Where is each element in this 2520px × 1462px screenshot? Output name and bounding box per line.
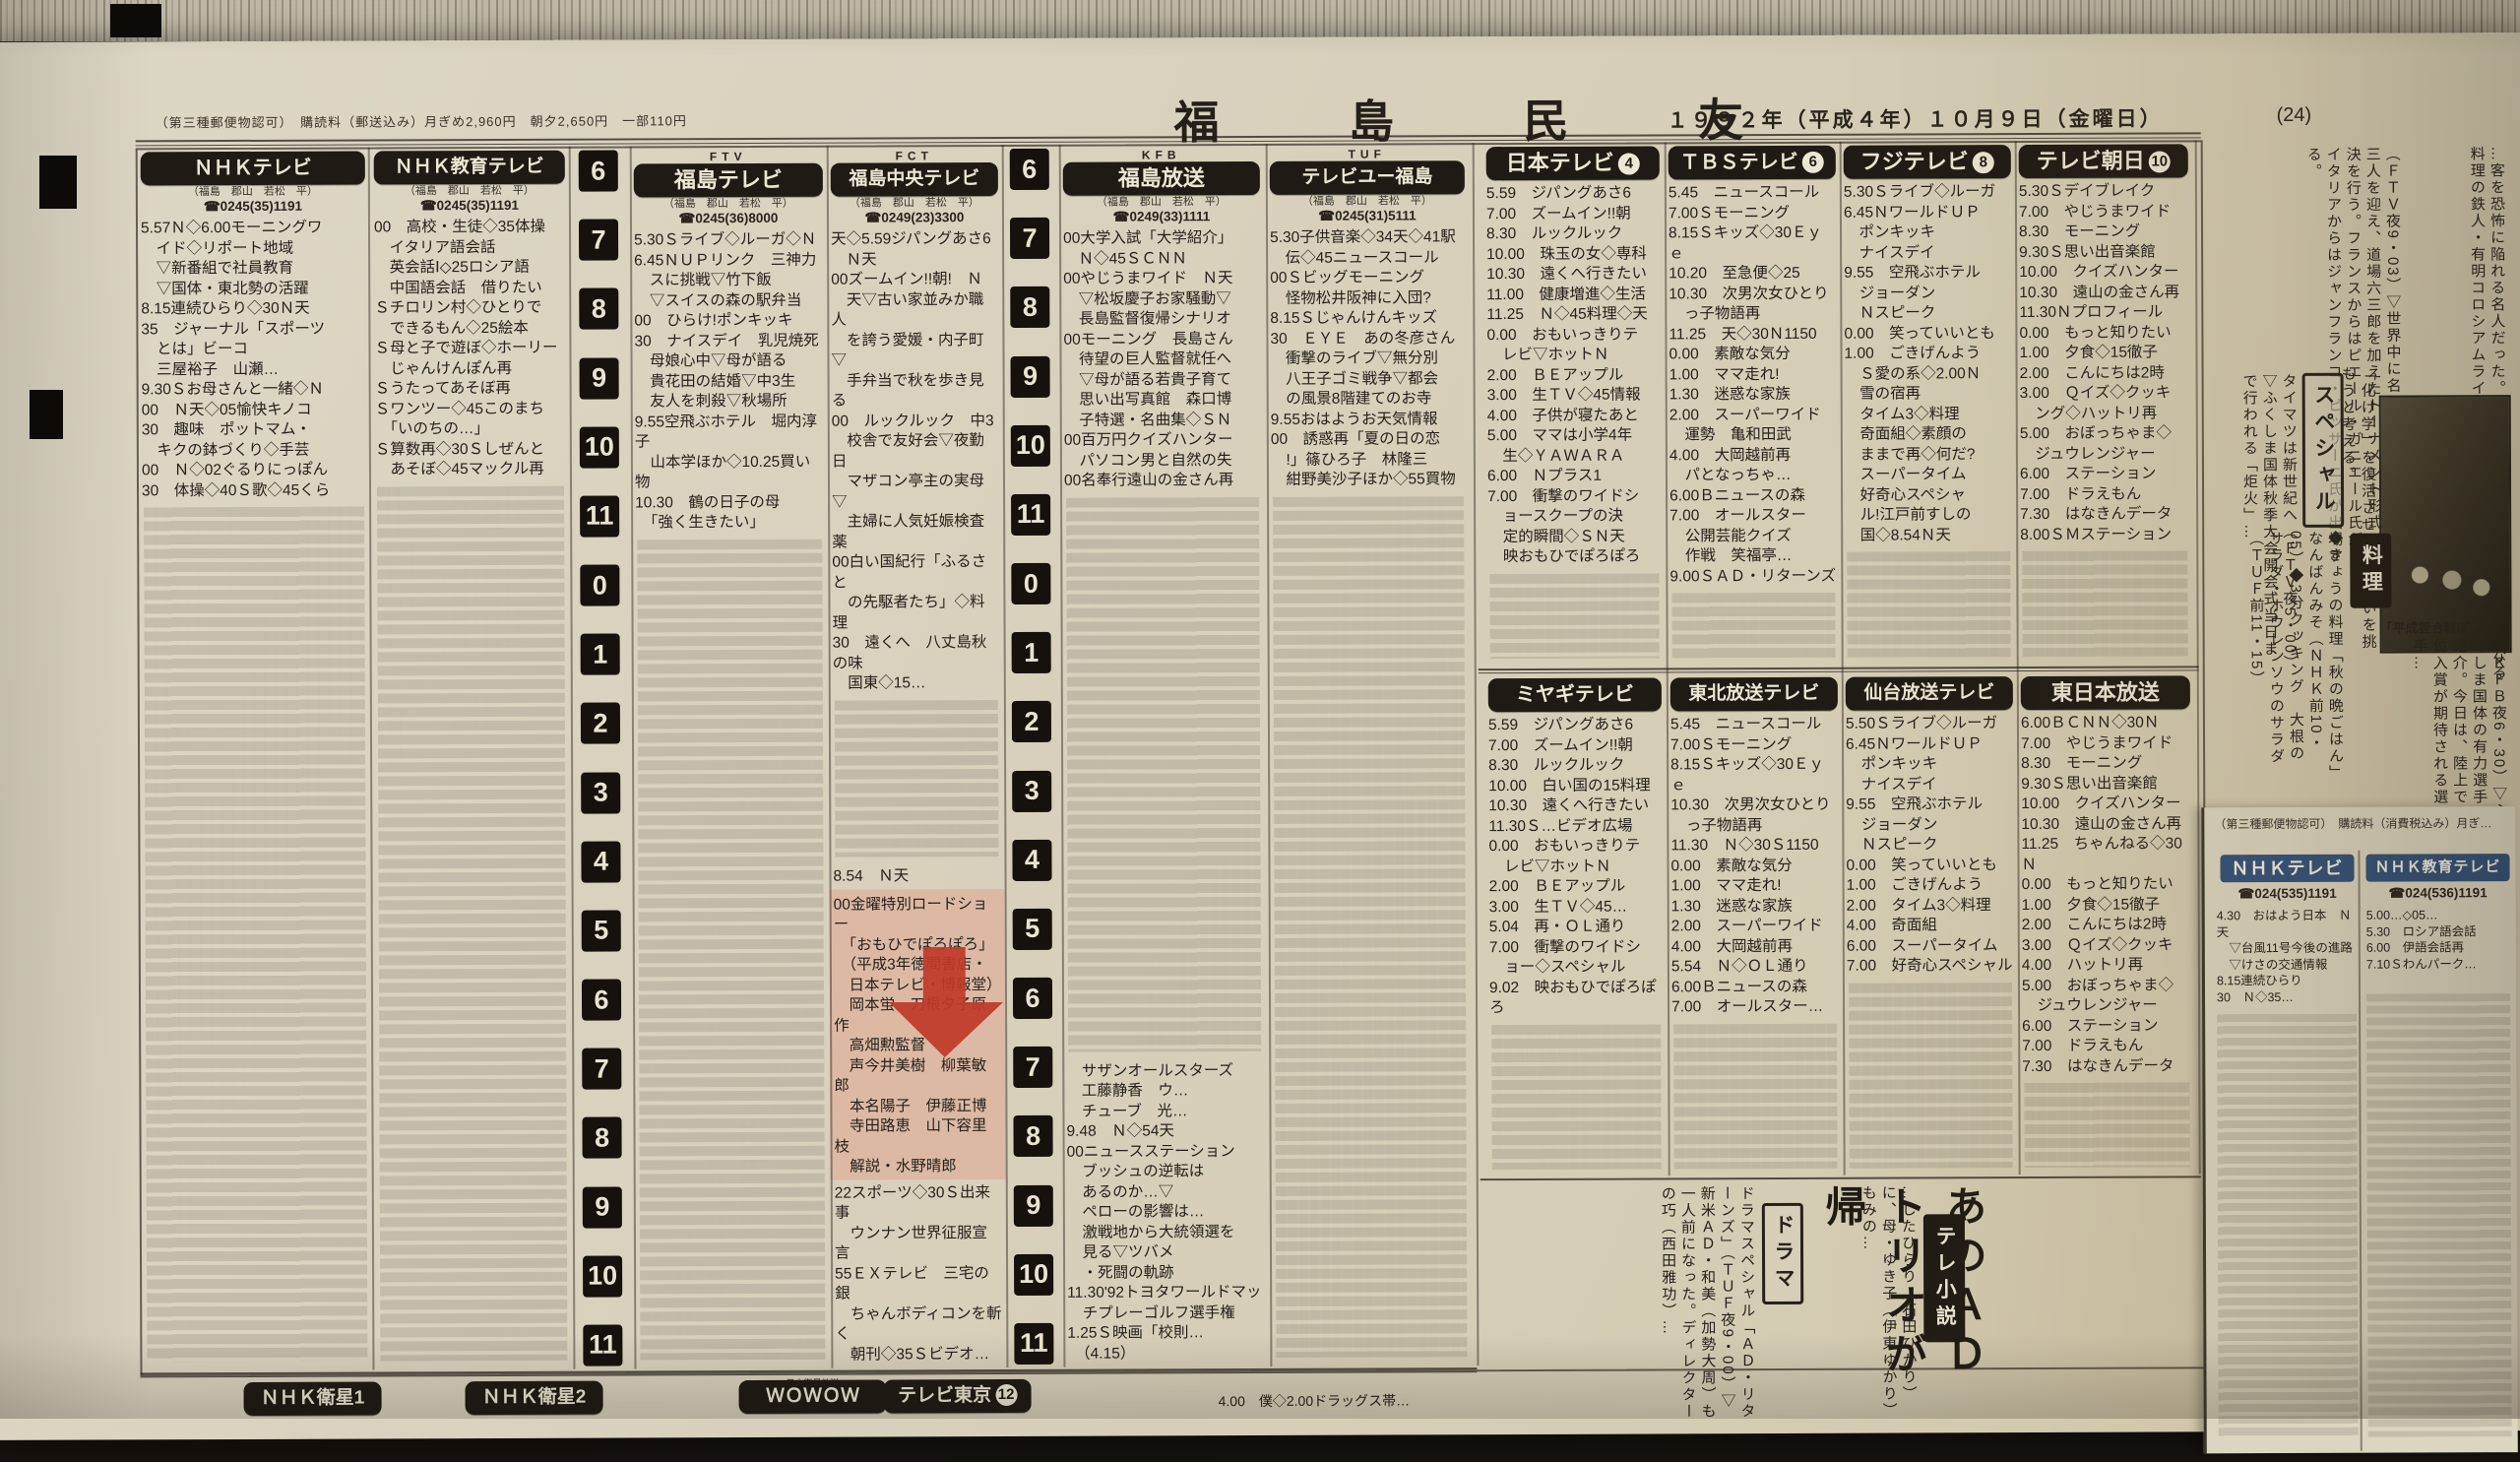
program-line: 6.00 スーパータイム <box>1847 936 2014 957</box>
program-line: 校舎で友好会▽夜勤日 <box>832 431 999 473</box>
channel-number: 8 <box>1973 152 1994 173</box>
program-line: 11.30 Ｎ◇30Ｓ1150 <box>1670 836 1838 857</box>
program-line: 5.57Ｎ◇6.00モーニングワ <box>141 218 365 238</box>
program-line: 5.30子供音楽◇34天◇41駅 <box>1270 227 1465 248</box>
page-number: (24) <box>2277 104 2312 127</box>
program-line: ジュウレンジャー <box>2020 444 2189 465</box>
program-line: キクの鉢づくり◇手芸 <box>142 440 366 461</box>
program-line: 5.30Ｓライブ◇ルーガ <box>1844 182 2011 203</box>
time-ruler: 6789101101234567891011 <box>1005 149 1059 1365</box>
program-line: 8.00ＳＭステーション <box>2020 525 2189 545</box>
program-line: （4.15） <box>1067 1343 1264 1364</box>
program-line: 定的瞬間◇ＳＮ天 <box>1487 527 1661 547</box>
program-line: 0.00 もっと知りたい <box>2019 323 2188 344</box>
program-line: 1.00 夕食◇15徹子 <box>2022 895 2191 916</box>
program-line: ング◇ハットリ再 <box>2020 404 2189 424</box>
program-lines: 5.30Ｓライブ◇ルーガ◇Ｎ6.45ＮＵＰリンク 三神力 スに挑戦▽竹下飯 ▽ス… <box>634 230 824 534</box>
program-line: 1.30 迷惑な家族 <box>1669 385 1837 406</box>
program-lines: 5.57Ｎ◇6.00モーニングワ イド◇リポート地域 ▽新番組で社員教育 ▽国体… <box>141 218 366 501</box>
program-line: 1.30 迷惑な家族 <box>1671 896 1839 917</box>
program-line: 1.25Ｓ映画「校則… <box>1067 1323 1264 1344</box>
time-ruler-cell: 1 <box>581 634 620 675</box>
program-line: 10.30 遠山の金さん再 <box>2019 283 2188 303</box>
channel-phone: ☎0245(35)1191 <box>374 198 565 215</box>
time-ruler-cell: 6 <box>582 980 621 1021</box>
program-line: 好奇心スペシャ <box>1845 485 2012 506</box>
channel-header: テレビユー福島 <box>1270 160 1465 195</box>
program-line: 母娘心中▽母が語る <box>634 351 823 372</box>
program-line: スに挑戦▽竹下飯 <box>634 271 823 291</box>
program-line: ル!江戸前すしの <box>1845 505 2012 526</box>
program-line: ▽新番組で社員教育 <box>141 258 365 279</box>
program-line: 10.00 白い国の15料理 <box>1488 776 1662 796</box>
channel-phone: ☎0249(33)1111 <box>1063 209 1260 225</box>
time-ruler-cell: 11 <box>1014 1323 1053 1365</box>
program-line: ちゃんボディコンを斬く <box>835 1304 1002 1346</box>
program-line: とは」ビーコ <box>141 339 365 359</box>
program-line: 10.20 至急便◇25 <box>1669 264 1836 285</box>
time-ruler-cell: 9 <box>1011 355 1050 397</box>
print-texture <box>144 506 367 1362</box>
program-line: 00モーニング 長島さん <box>1063 329 1260 350</box>
program-line: 主婦に人気妊娠検査薬 <box>832 512 999 553</box>
drama-section-label: ドラマ <box>1762 1203 1803 1304</box>
program-line: 30 趣味 ポットマム・ <box>142 419 366 440</box>
time-ruler-cell: 10 <box>1014 1254 1053 1296</box>
program-line: 00 ルックルック 中3 <box>832 412 999 432</box>
program-line: ペローの影響は… <box>1067 1202 1264 1223</box>
program-line: 00大学入試「大学紹介」 <box>1063 228 1260 249</box>
channel-header: 福島テレビ <box>634 163 823 198</box>
newspaper-photo: { "colors":{"paper":"#d8d1bd","ink":"#26… <box>0 0 2520 1419</box>
program-line: 8.15Ｓキッズ◇30Ｅｙｅ <box>1670 755 1838 796</box>
program-line: 8.30 ルックルック <box>1488 755 1662 776</box>
program-line: の風景8階建てのお寺 <box>1271 389 1466 410</box>
mini-program-line: 7.10Ｓわんパーク… <box>2366 956 2510 973</box>
program-line: 9.48 Ｎ◇54天 <box>1067 1121 1264 1142</box>
program-lines: 5.30Ｓデイブレイク7.00 やじうまワイド8.30 モーニング9.30Ｓ思い… <box>2019 181 2189 545</box>
mini-phone-nhk: ☎024(535)1191 <box>2221 886 2355 903</box>
highlighted-program-line: 寺田路恵 山下容里枝 <box>834 1116 1001 1158</box>
channel-header-label: 日本テレビ <box>1506 151 1614 175</box>
time-ruler-cell: 7 <box>1013 1047 1052 1088</box>
program-line: 9.00ＳＡＤ・リターンズ <box>1669 566 1837 587</box>
program-line: Ｎ天 <box>831 250 998 271</box>
program-lines: 00大学入試「大学紹介」 Ｎ◇45ＳＣＮＮ00やじうまワイド Ｎ天 ▽松坂慶子お… <box>1063 228 1261 491</box>
print-texture <box>1673 1023 1838 1169</box>
channel-header-label: テレビ朝日 <box>2037 149 2145 173</box>
print-texture <box>835 700 999 858</box>
program-line: 30 体操◇40Ｓ歌◇45くら <box>142 480 366 501</box>
program-line: 7.00 衝撃のワイドシ <box>1487 486 1661 507</box>
program-line: 1.00 夕食◇15徹子 <box>2019 343 2188 363</box>
program-line: 00白い国紀行「ふるさと <box>832 552 999 594</box>
station-logo: KFB <box>1063 148 1260 162</box>
program-line: 10.30 遠くへ行きたい <box>1486 264 1660 285</box>
program-line: 10.30 次男次女ひとり <box>1669 284 1836 304</box>
program-line: 2.00 ＢＥアップル <box>1489 876 1663 897</box>
channel-header-label: ＮＨＫ衛星1 <box>261 1388 365 1409</box>
program-line: 思い出写真館 森口博 <box>1064 390 1261 411</box>
highlighted-program-line: 声今井美樹 柳葉敏郎 <box>834 1056 1001 1098</box>
program-line: 0.00 笑っていいとも <box>1844 324 2011 345</box>
program-line: 2.00 こんにちは2時 <box>2022 915 2191 935</box>
program-line: 5.45 ニュースコール <box>1669 183 1836 204</box>
highlighted-program-line: 「おもひでぽろぽろ」 <box>834 935 1001 956</box>
channel-column-福島中央テレビ: FCT福島中央テレビ（福島 郡山 若松 平）☎0249(23)3300天◇5.5… <box>831 149 1003 1366</box>
program-line: 6.00 ステーション <box>2020 464 2189 484</box>
program-line: 10.00 クイズハンター <box>2021 794 2190 814</box>
program-line: 8.30 モーニング <box>2019 222 2188 242</box>
channel-column-ミヤギテレビ: ミヤギテレビ5.59 ジパングあさ67.00 ズームイン!!朝8.30 ルックル… <box>1488 677 1664 1176</box>
program-line: 作戦 笑福亭… <box>1669 546 1837 567</box>
teleto-first-line: 4.00 僕◇2.00ドラッグス帯… <box>1219 1390 1411 1411</box>
program-line: 00 ひらけ!ポンキッキ <box>634 311 823 332</box>
channel-column-日本テレビ: 日本テレビ45.59 ジパングあさ67.00 ズームイン!!朝8.30 ルックル… <box>1486 146 1662 665</box>
program-line: っ子物語再 <box>1669 304 1836 325</box>
program-line: ▽国体・東北勢の活躍 <box>141 279 365 299</box>
program-line: 11.30Ｎプロフィール <box>2019 302 2188 323</box>
program-line: ウンナン世界征服宣言 <box>835 1224 1002 1265</box>
program-line: 6.00 ステーション <box>2022 1016 2191 1037</box>
program-line: 6.00ＢＣＮＮ◇30Ｎ <box>2021 713 2190 733</box>
channel-header-label: 東日本放送 <box>2051 679 2160 704</box>
time-ruler-cell: 3 <box>1012 770 1051 811</box>
program-line: 0.00 笑っていいとも <box>1846 856 2013 876</box>
program-line: 激戦地から大統領選を <box>1067 1222 1264 1242</box>
print-texture <box>1273 496 1467 1358</box>
print-texture <box>2217 1014 2359 1438</box>
program-line: 2.00 ＢＥアップル <box>1487 365 1661 386</box>
program-line: 55ＥＸテレビ 三宅の銀 <box>835 1264 1002 1305</box>
program-line: 30 遠くへ 八丈島秋の味 <box>833 633 1000 674</box>
program-line: 天◇5.59ジパングあさ6 <box>831 229 998 250</box>
time-ruler-cell: 4 <box>1012 840 1051 881</box>
program-line: 00名奉行遠山の金さん再 <box>1064 471 1261 491</box>
program-lines: 5.30子供音楽◇34天◇41駅 伝◇45ニュースコール00Ｓビッグモーニング … <box>1270 227 1466 490</box>
program-line: Ｓ算数再◇30Ｓしぜんと <box>375 439 566 460</box>
satellite-channel-header: テレビ東京12 <box>884 1379 1032 1414</box>
channel-header-label: ＮＨＫ教育テレビ <box>395 157 544 178</box>
channel-header: ＮＨＫテレビ <box>141 151 365 185</box>
program-lines: サザンオールスターズ 工藤静香 ウ… チューブ 光…9.48 Ｎ◇54天00ニュ… <box>1066 1060 1264 1364</box>
program-line: 10.30 次男次女ひとり <box>1670 795 1838 816</box>
photo-background-mark <box>39 156 77 209</box>
program-line: 5.59 ジパングあさ6 <box>1486 183 1660 204</box>
program-line: の先駆者たち」◇料理 <box>832 593 999 634</box>
time-ruler-cell: 8 <box>579 288 618 330</box>
program-line: チプレーゴルフ選手権 <box>1067 1303 1264 1323</box>
program-lines: 8.54 Ｎ天 <box>834 866 1001 887</box>
time-ruler-cell: 9 <box>1014 1184 1053 1226</box>
program-line: 10.30 鶴の日子の母 <box>635 492 824 513</box>
channel-column-仙台放送テレビ: 仙台放送テレビ5.50Ｓライブ◇ルーガ6.45ＮワールドＵＰ ポンキッキ ナイス… <box>1846 676 2015 1175</box>
program-line: 工藤静香 ウ… <box>1066 1081 1263 1102</box>
print-texture <box>1491 1024 1662 1170</box>
program-line: あるのか…▽ <box>1067 1181 1264 1202</box>
print-texture <box>637 539 825 1360</box>
program-line: 00ニュースステーション <box>1067 1141 1264 1162</box>
program-line: 7.30 はなきんデータ <box>2022 1056 2191 1077</box>
program-line: 5.30Ｓライブ◇ルーガ◇Ｎ <box>634 230 823 251</box>
channel-column-福島テレビ: FTV福島テレビ（福島 郡山 若松 平）☎0245(36)80005.30Ｓライ… <box>634 150 828 1367</box>
article-cooking: ◆きょうの料理「秋の晩ごはん」なんばんみそ（ＮＨＫ前10・05）◆3分クッキング… <box>2253 531 2345 777</box>
time-ruler-cell: 11 <box>580 495 619 537</box>
channel-header: 福島中央テレビ <box>831 162 998 197</box>
program-line: 雪の宿再 <box>1845 384 2012 405</box>
program-line: 5.45 ニュースコール <box>1670 715 1838 735</box>
program-line: 生◇ＹＡＷＡＲＡ <box>1487 446 1661 467</box>
program-line: 00やじうまワイド Ｎ天 <box>1063 269 1260 289</box>
program-line: !」篠ひろ子 林隆三 <box>1271 450 1466 471</box>
program-lines: 5.30Ｓライブ◇ルーガ6.45ＮワールドＵＰ ポンキッキ ナイスデイ9.55 … <box>1844 182 2012 546</box>
mini-program-line: ▽台風11号今後の進路 <box>2217 940 2357 957</box>
program-line: 00Ｓビッグモーニング <box>1270 268 1465 288</box>
program-line: ョー◇スペシャル <box>1489 957 1663 978</box>
program-line: 国◇8.54Ｎ天 <box>1845 526 2012 546</box>
program-line: 11.30'92トヨタワールドマッ <box>1067 1283 1264 1303</box>
mini-program-line: 8.15連続ひらり <box>2217 973 2357 989</box>
channel-column-東北放送テレビ: 東北放送テレビ5.45 ニュースコール7.00Ｓモーニング8.15Ｓキッズ◇30… <box>1670 677 1840 1176</box>
print-texture <box>377 485 567 1361</box>
program-line: 8.30 ルックルック <box>1486 223 1660 244</box>
program-line: 00 Ｎ◇02ぐるりにっぽん <box>142 460 366 480</box>
program-line: 22スポーツ◇30Ｓ出来事 <box>835 1183 1002 1225</box>
highlighted-program-line: 日本テレビ・博報堂） <box>834 976 1001 996</box>
channel-column-ＮＨＫテレビ: ＮＨＫテレビ（福島 郡山 若松 平）☎0245(35)11915.57Ｎ◇6.0… <box>141 151 370 1367</box>
program-line: 衝撃のライブ▽無分別 <box>1270 349 1465 369</box>
channel-phone: ☎0245(36)8000 <box>634 211 823 227</box>
channel-column-東日本放送: 東日本放送6.00ＢＣＮＮ◇30Ｎ7.00 やじうまワイド8.30 モーニング9… <box>2021 675 2192 1174</box>
program-line: 4.00 奇面組 <box>1847 916 2014 936</box>
time-ruler-cell: 11 <box>1011 494 1050 536</box>
program-line: 8.15Ｓじゃんけんキッズ <box>1270 308 1465 329</box>
program-line: 7.00 オールスター… <box>1671 997 1839 1018</box>
program-line: ジュウレンジャー <box>2022 995 2191 1016</box>
program-line: 7.30 はなきんデータ <box>2020 504 2189 525</box>
program-line: ▽母が語る若貴子育て <box>1064 369 1261 390</box>
time-ruler-cell: 8 <box>582 1117 621 1159</box>
program-line: Ｓ母と子で遊ぼ◇ホーリー <box>374 339 565 359</box>
program-line: ブッシュの逆転は <box>1067 1162 1264 1182</box>
program-line: イタリア語会話 <box>374 237 565 258</box>
program-line: 00百万円クイズハンター <box>1064 430 1261 451</box>
masthead-note: （第三種郵便物認可） 購読料（郵送込み）月ぎめ2,960円 朝夕2,650円 一… <box>156 110 687 131</box>
program-line: タイム3◇料理 <box>1845 405 2012 425</box>
program-line: ポンキッキ <box>1846 754 2013 775</box>
time-ruler-cell: 3 <box>581 772 620 813</box>
program-line: 11.25 天◇30Ｎ1150 <box>1669 324 1836 345</box>
program-line: 10.00 クイズハンター <box>2019 262 2188 283</box>
program-line: 4.00 大岡越前再 <box>1671 936 1839 957</box>
program-line: 7.00 ドラえもん <box>2022 1036 2191 1056</box>
time-ruler-cell: 9 <box>583 1186 622 1228</box>
program-line: 10.30 遠くへ行きたい <box>1488 795 1662 816</box>
program-line: 8.54 Ｎ天 <box>834 866 1001 887</box>
program-line: 8.15Ｓキッズ◇30Ｅｙｅ <box>1669 223 1836 265</box>
channel-number: 6 <box>1802 152 1824 173</box>
program-line: 友人を刺殺▽秋場所 <box>635 392 824 413</box>
photo-background-mark <box>30 390 63 439</box>
program-line: ジョーダン <box>1844 284 2011 304</box>
time-ruler-cell: 8 <box>1013 1115 1052 1157</box>
program-line: 天▽古い家並みか職人 <box>831 290 998 332</box>
program-line: 国東◇15… <box>833 673 1000 694</box>
print-texture <box>1671 593 1835 659</box>
program-line: 7.00Ｓモーニング <box>1669 203 1836 223</box>
program-line: 子特選・名曲集◇ＳＮ <box>1064 410 1261 430</box>
program-line: 5.30Ｓデイブレイク <box>2019 181 2188 202</box>
program-line: 8.30 モーニング <box>2021 753 2190 774</box>
program-line: マザコン亭主の実母▽ <box>832 472 999 513</box>
program-line: 2.00 スーパーワイド <box>1671 917 1839 937</box>
channel-area-note: （福島 郡山 若松 平） <box>141 184 365 199</box>
channel-column-テレビ朝日: テレビ朝日105.30Ｓデイブレイク7.00 やじうまワイド8.30 モーニング… <box>2019 144 2190 663</box>
print-texture <box>1489 573 1659 659</box>
program-line: 6.45ＮワールドＵＰ <box>1846 734 2013 755</box>
time-ruler-cell: 4 <box>581 841 620 882</box>
channel-header: フジテレビ8 <box>1844 145 2011 179</box>
channel-header: 仙台放送テレビ <box>1846 676 2013 711</box>
program-line: 5.04 再・ＯＬ通り <box>1489 917 1663 937</box>
program-line: あそぼ◇45マックル再 <box>375 460 566 480</box>
article-drama: ドラマスペシャル「ＡＤ・リターンズ」（ＴＵＦ夜9・00）▽新米ＡＤ・和美（加勢大… <box>1622 1185 1757 1421</box>
program-line: ョースクープの決 <box>1487 506 1661 527</box>
channel-number: 10 <box>2149 151 2171 172</box>
channel-header: 東日本放送 <box>2021 675 2190 710</box>
print-texture <box>1066 497 1261 1052</box>
print-texture <box>1847 551 2010 658</box>
satellite-channel-header: ＷＯＷＯＷ <box>739 1379 887 1414</box>
print-texture <box>2024 1082 2189 1168</box>
tv-novel-label: テレ小説 <box>1923 1214 1965 1342</box>
channel-header-label: ＴＢＳテレビ <box>1680 152 1798 173</box>
channel-header: ＮＨＫ教育テレビ <box>374 151 565 185</box>
program-line: 5.00 おぼっちゃま◇ <box>2022 976 2191 996</box>
channel-header-label: テレビ東京 <box>898 1385 991 1406</box>
program-line: 長島監督復帰シナリオ <box>1063 309 1260 330</box>
program-line: ▽松坂慶子お家騒動▽ <box>1063 288 1260 309</box>
channel-header-label: テレビユー福島 <box>1301 166 1432 188</box>
time-ruler-cell: 10 <box>583 1255 622 1297</box>
channel-header: 福島放送 <box>1063 161 1260 196</box>
channel-column-ＴＢＳテレビ: ＴＢＳテレビ65.45 ニュースコール7.00Ｓモーニング8.15Ｓキッズ◇30… <box>1669 146 1838 665</box>
program-line: 9.02 映おもひでぽろぽろ <box>1489 978 1663 1019</box>
program-line: 5.00 ママは小学4年 <box>1487 425 1661 446</box>
program-lines: 6.00ＢＣＮＮ◇30Ｎ7.00 やじうまワイド8.30 モーニング9.30Ｓ思… <box>2021 713 2191 1077</box>
program-line: 30 ＥＹＥ あの冬彦さん <box>1270 329 1465 350</box>
program-line: っ子物語再 <box>1670 815 1838 836</box>
program-lines: 5.45 ニュースコール7.00Ｓモーニング8.15Ｓキッズ◇30Ｅｙｅ10.3… <box>1670 715 1839 1018</box>
program-line: 奇面組◇素顔の <box>1845 424 2012 445</box>
program-line: 6.00Ｂニュースの森 <box>1671 977 1839 997</box>
time-ruler-cell: 6 <box>579 151 618 192</box>
program-line: 貴花田の結婚▽中3生 <box>635 371 824 392</box>
program-line: 3.00 Ｑイズ◇クッキ <box>2022 935 2191 956</box>
program-line: Ｎ◇45ＳＣＮＮ <box>1063 248 1260 269</box>
program-line: 10.30 遠山の金さん再 <box>2021 814 2190 835</box>
program-line: チューブ 光… <box>1066 1101 1263 1121</box>
program-line: 7.00 やじうまワイド <box>2021 733 2190 754</box>
channel-column-ＮＨＫ教育テレビ: ＮＨＫ教育テレビ（福島 郡山 若松 平）☎0245(35)119100 高校・生… <box>374 151 570 1367</box>
program-line: 6.00Ｂニュースの森 <box>1669 485 1837 506</box>
time-ruler-cell: 5 <box>1013 909 1052 950</box>
channel-phone: ☎0249(23)3300 <box>831 210 998 226</box>
program-lines: 天◇5.59ジパングあさ6 Ｎ天00ズームイン!!朝! Ｎ 天▽古い家並みか職人… <box>831 229 1000 694</box>
highlighted-program-line: 本名陽子 伊藤正博 <box>834 1097 1001 1117</box>
program-line: イド◇リポート地域 <box>141 238 365 259</box>
channel-header-label: ＮＨＫテレビ <box>194 158 312 179</box>
program-line: 11.00 健康増進◇生活 <box>1486 285 1660 305</box>
program-line: 中国語会話 借りたい <box>374 278 565 298</box>
channel-header-label: 福島テレビ <box>674 167 783 192</box>
program-line: ナイスデイ <box>1844 243 2011 264</box>
program-line: パソコン男と自然の失 <box>1064 450 1261 471</box>
channel-area-note: （福島 郡山 若松 平） <box>1063 195 1260 210</box>
time-ruler-cell: 7 <box>582 1049 621 1090</box>
program-line: 9.30Ｓお母さんと一緒◇Ｎ <box>142 379 366 400</box>
channel-header-label: フジテレビ <box>1860 149 1969 173</box>
mini-channel-header-nhk: ＮＨＫテレビ <box>2220 855 2354 883</box>
program-line: 9.55空飛ぶホテル 堀内淳子 <box>635 412 824 453</box>
program-line: 「強く生きたい」 <box>635 513 824 534</box>
program-line: 怪物松井阪神に入団? <box>1270 288 1465 309</box>
time-ruler-cell: 8 <box>1010 286 1049 328</box>
program-line: 00 Ｎ天◇05愉快キノコ <box>142 400 366 420</box>
program-line: 3.00 Ｑイズ◇クッキ <box>2020 383 2189 404</box>
channel-header: ミヤギテレビ <box>1488 677 1662 712</box>
program-line: 0.00 おもいっきりテ <box>1486 325 1660 346</box>
program-line: じゃんけんぽん再 <box>375 358 566 379</box>
mini-listing-column: 5.00…◇05…5.30 ロシア語会話6.00 伊語会話再7.10Ｓわんパーク… <box>2366 907 2510 973</box>
program-line: 3.00 生ＴＶ◇45情報 <box>1487 385 1661 406</box>
program-line: を誇う愛媛・内子町▽ <box>831 331 998 372</box>
station-logo: FTV <box>634 150 823 164</box>
adjacent-page-corner: （第三種郵便物認可） 購読料（消費税込み）月ぎ… ＮＨＫテレビ ＮＨＫ教育テレビ… <box>2201 806 2518 1453</box>
program-lines: 5.59 ジパングあさ67.00 ズームイン!!朝8.30 ルックルック10.0… <box>1486 183 1661 567</box>
program-line: 見る▽ツバメ <box>1067 1242 1264 1263</box>
program-line: 1.00 ごきげんよう <box>1847 875 2014 896</box>
channel-column-フジテレビ: フジテレビ85.30Ｓライブ◇ルーガ6.45ＮワールドＵＰ ポンキッキ ナイスデ… <box>1844 145 2013 664</box>
program-line: スーパータイム <box>1845 465 2012 485</box>
program-line: 7.00 ズームイン!!朝 <box>1486 204 1660 224</box>
time-ruler-cell: 11 <box>583 1324 622 1366</box>
highlighted-program-line: （平成3年徳間書店・ <box>834 955 1001 976</box>
channel-column-テレビユー福島: TUFテレビユー福島（福島 郡山 若松 平）☎0245(31)51115.30子… <box>1270 147 1470 1364</box>
time-ruler-cell: 2 <box>1012 701 1051 742</box>
channel-column-福島放送: KFB福島放送（福島 郡山 若松 平）☎0249(33)111100大学入試「大… <box>1063 148 1265 1365</box>
program-line: 5.50Ｓライブ◇ルーガ <box>1846 714 2013 734</box>
program-line: 4.00 ハットリ再 <box>2022 955 2191 976</box>
program-line: 8.15連続ひらり◇30Ｎ天 <box>141 298 365 319</box>
program-line: 11.30Ｓ…ビデオ広場 <box>1488 816 1662 837</box>
highlighted-program-line: 高畑勲監督 <box>834 1036 1001 1056</box>
program-line: 7.00 ドラえもん <box>2020 484 2189 505</box>
print-texture <box>1849 983 2013 1169</box>
program-lines: 5.59 ジパングあさ67.00 ズームイン!!朝8.30 ルックルック10.0… <box>1488 715 1663 1018</box>
program-line: 1.00 ママ走れ! <box>1671 876 1839 897</box>
program-line: レビ▽ホットＮ <box>1486 345 1660 365</box>
time-ruler-cell: 7 <box>579 220 618 261</box>
time-ruler-cell: 5 <box>582 910 621 951</box>
program-line: 0.00 おもいっきりテ <box>1488 836 1662 857</box>
mini-divider <box>2358 851 2362 1451</box>
mini-program-line: 30 Ｎ◇35… <box>2217 988 2357 1005</box>
time-ruler-cell: 10 <box>580 426 619 468</box>
satellite-channel-header: ＮＨＫ衛星2 <box>466 1381 603 1416</box>
program-line: 4.00 子供が寝たあと <box>1487 406 1661 426</box>
channel-header-label: ミヤギテレビ <box>1516 684 1634 706</box>
